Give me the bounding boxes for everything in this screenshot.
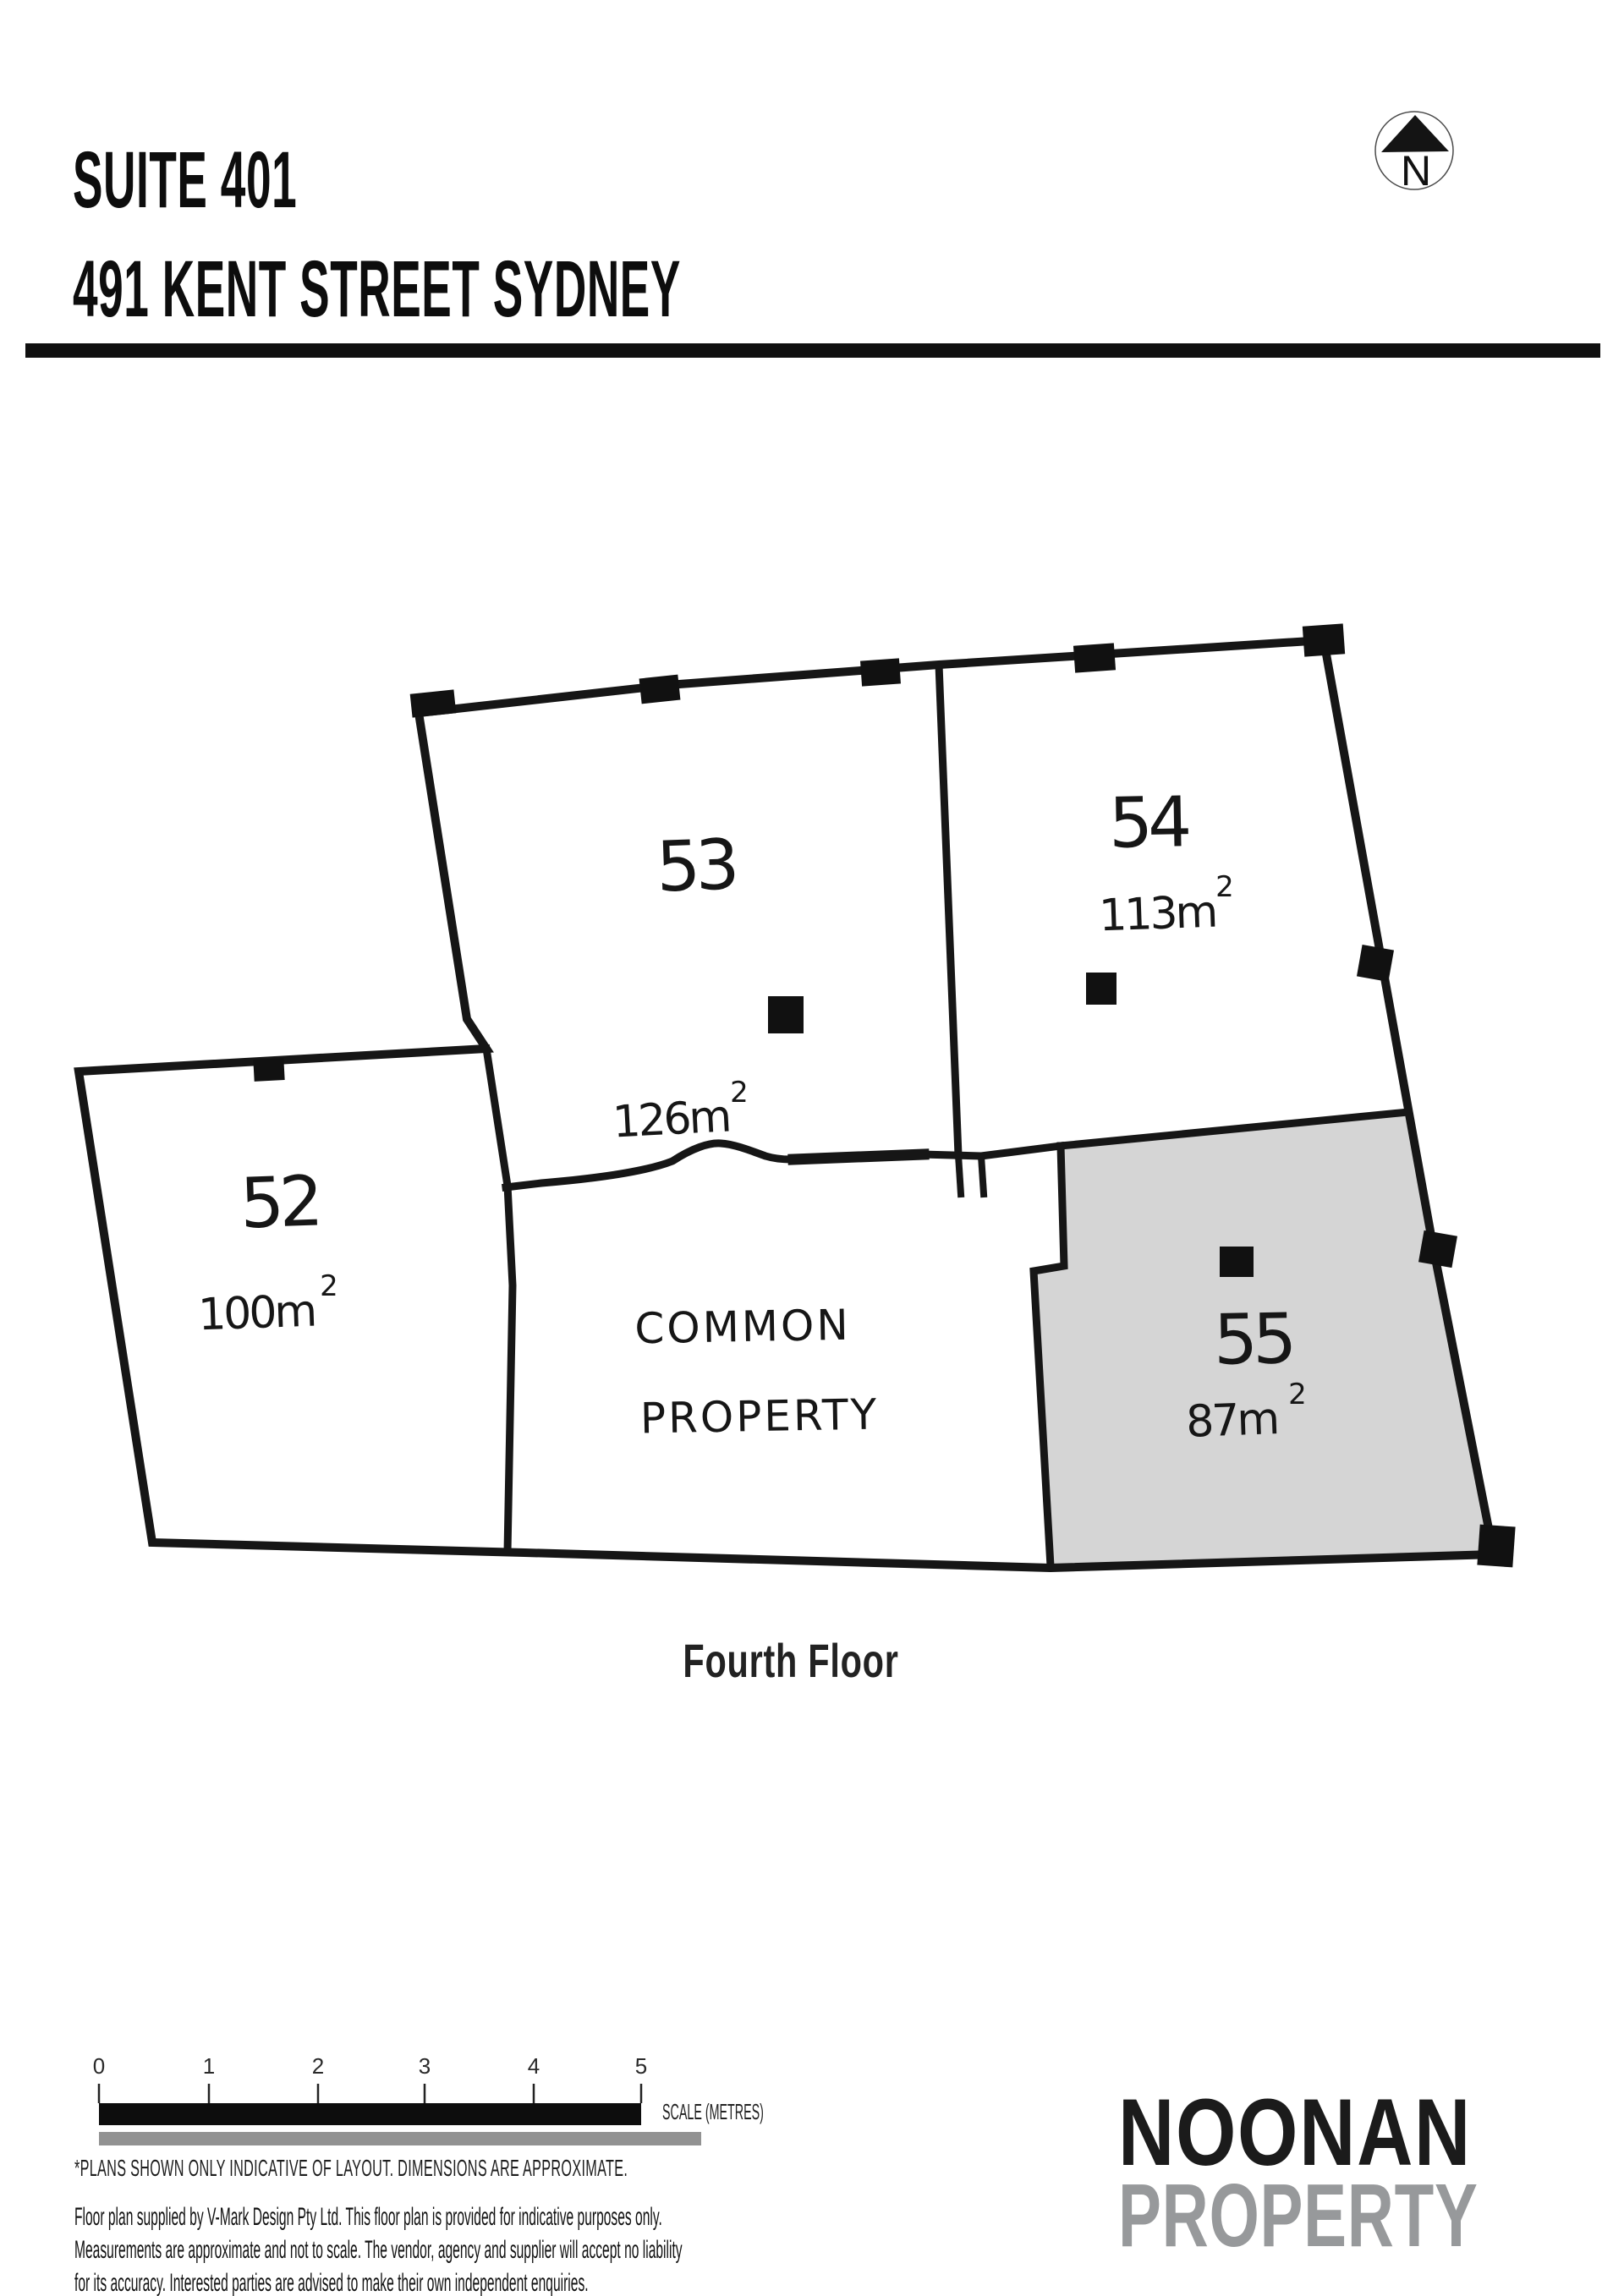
disclaimer-line-3: for its accuracy. Interested parties are… — [74, 2266, 683, 2296]
column — [410, 689, 457, 717]
scale-tick-label: 4 — [528, 2053, 540, 2079]
scale-bar-black — [99, 2103, 641, 2125]
column — [1477, 1525, 1515, 1568]
room-52-number: 52 — [239, 1161, 320, 1244]
column — [639, 675, 681, 704]
wall-divider-53-54 — [939, 665, 958, 1155]
room-52-label: 52 100m 2 — [197, 1161, 338, 1340]
scale-units-label: SCALE (METRES) — [662, 2101, 764, 2125]
north-letter: N — [1401, 147, 1431, 195]
floor-plan-svg: 53 126m 2 54 113m 2 52 100m 2 55 87m 2 C… — [0, 575, 1624, 1607]
scale-tick-label: 1 — [203, 2053, 215, 2079]
room-53-label: 53 126m 2 — [612, 825, 749, 1148]
column — [1073, 643, 1116, 672]
column — [1357, 945, 1394, 982]
floor-plan-page: SUITE 401 491 KENT STREET SYDNEY N — [0, 0, 1624, 2296]
disclaimer-line-2: Measurements are approximate and not to … — [74, 2233, 683, 2266]
column — [1220, 1247, 1254, 1277]
scale-tick-label: 2 — [312, 2053, 324, 2079]
room-52-area: 100m — [197, 1286, 315, 1341]
room-53-area-sup: 2 — [730, 1076, 749, 1110]
north-arrow-icon: N — [1360, 105, 1470, 198]
room-54-area-sup: 2 — [1215, 870, 1234, 904]
wall-door-jamb-right — [981, 1156, 984, 1194]
wall-divider-52-common — [486, 1049, 513, 1552]
scale-tick-label: 5 — [635, 2053, 647, 2079]
column — [253, 1058, 284, 1082]
scale-ticks — [99, 2084, 641, 2103]
column — [1418, 1230, 1457, 1268]
disclaimer-paragraph: Floor plan supplied by V-Mark Design Pty… — [74, 2200, 683, 2296]
header-divider-rule — [25, 343, 1600, 358]
wall-door-lintel — [793, 1154, 924, 1159]
page-title: SUITE 401 491 KENT STREET SYDNEY — [73, 126, 681, 344]
wall-door-jamb-left — [958, 1155, 961, 1194]
room-53-number: 53 — [655, 825, 736, 907]
room-54-area: 113m — [1098, 887, 1216, 942]
common-property-label: COMMON PROPERTY — [634, 1301, 880, 1444]
room-55-area: 87m — [1185, 1394, 1278, 1448]
scale-tick-label: 0 — [93, 2053, 105, 2079]
title-line-2: 491 KENT STREET SYDNEY — [73, 235, 681, 344]
room-54-label: 54 113m 2 — [1098, 782, 1234, 941]
title-line-1: SUITE 401 — [73, 126, 681, 235]
room-53-area: 126m — [612, 1091, 731, 1148]
column — [860, 658, 901, 686]
wall-common-top — [506, 1143, 1061, 1187]
room-54-number: 54 — [1108, 782, 1189, 864]
common-property-line2: PROPERTY — [639, 1390, 879, 1444]
column — [1086, 973, 1116, 1005]
floor-name-label: Fourth Floor — [666, 1637, 916, 1685]
common-property-line1: COMMON — [634, 1301, 851, 1353]
column — [768, 996, 804, 1033]
agency-logo-word: PROPERTY — [1118, 2171, 1479, 2260]
disclaimer-heading: *PLANS SHOWN ONLY INDICATIVE OF LAYOUT. … — [74, 2155, 628, 2182]
scale-bar: 0 1 2 3 4 5 SCALE (METRES) — [51, 2030, 795, 2152]
room-52-area-sup: 2 — [320, 1269, 338, 1303]
disclaimer-line-1: Floor plan supplied by V-Mark Design Pty… — [74, 2200, 683, 2233]
room-55-number: 55 — [1213, 1299, 1292, 1381]
scale-tick-label: 3 — [419, 2053, 431, 2079]
column — [1303, 623, 1345, 656]
scale-bar-gray-shadow — [99, 2132, 701, 2145]
room-55-area-sup: 2 — [1288, 1378, 1307, 1411]
